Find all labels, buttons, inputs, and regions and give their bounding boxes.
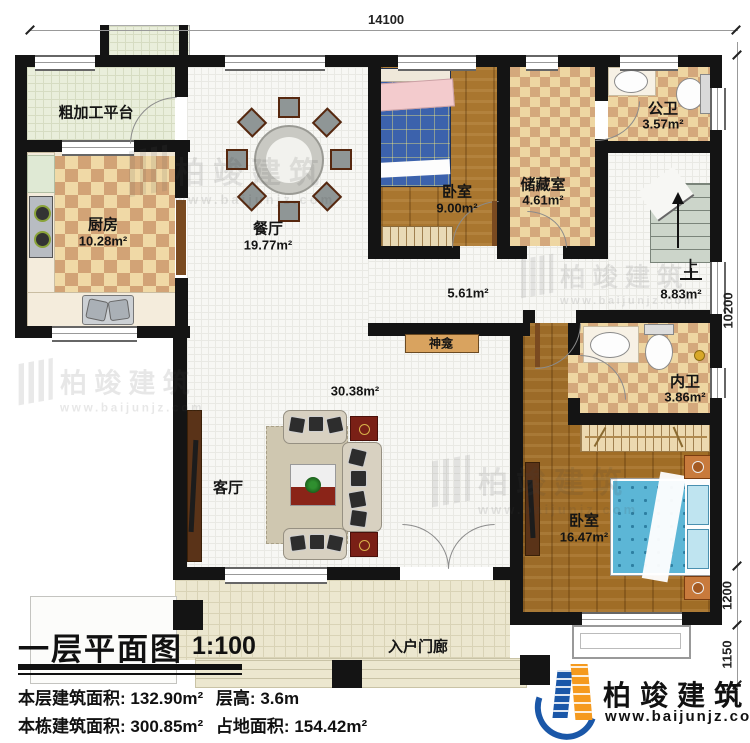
wall-privatebath-bottom <box>568 413 710 425</box>
dining-chair <box>226 149 248 170</box>
room-area-living: 30.38m² <box>331 384 379 399</box>
wall-living-left <box>173 338 187 580</box>
sofa-cushion <box>347 447 368 468</box>
sofa-cushion <box>288 416 307 435</box>
kitchen-sliding-door <box>176 200 186 275</box>
stats-footprint-label: 占地面积: <box>216 717 290 736</box>
room-label-platform: 粗加工平台 <box>58 102 133 123</box>
room-label-private-bath: 内卫 <box>670 371 700 392</box>
stairs-up-arrow <box>672 192 684 204</box>
fridge <box>27 155 55 193</box>
sofa-cushion <box>326 416 345 435</box>
stats-height-label: 层高: <box>216 689 256 708</box>
stove-burner <box>34 205 51 222</box>
wall-kitchen-dining <box>175 278 188 338</box>
wall-top <box>15 55 722 67</box>
area-stair-hall: 8.83m² <box>660 287 701 302</box>
dim-line-right <box>737 42 738 690</box>
stove-burner <box>34 231 51 248</box>
wall-storage-bottom <box>497 246 527 259</box>
sofa-cushion <box>349 509 368 528</box>
wall-privatebath-left <box>568 398 580 413</box>
window <box>225 55 325 71</box>
room-label-public-bath: 公卫 <box>648 98 678 119</box>
wall-left <box>15 55 27 338</box>
logo-building-orange-icon <box>571 664 593 720</box>
private-bath-sink <box>590 332 630 358</box>
bedroom2-door-leaf <box>535 323 540 367</box>
side-table <box>350 416 378 441</box>
room-area-dining: 19.77m² <box>244 238 292 253</box>
window <box>52 326 137 342</box>
sofa-top <box>283 410 347 444</box>
public-bath-sink <box>614 70 648 93</box>
stats-floor-area-label: 本层建筑面积: <box>18 689 126 708</box>
room-area-private-bath: 3.86m² <box>664 390 705 405</box>
wall-publicbath-left <box>595 67 608 101</box>
wall-right <box>710 55 722 625</box>
stats-footprint-value: 154.42m² <box>294 717 367 736</box>
area-hallway: 5.61m² <box>447 286 488 301</box>
wall-bedroom2-top <box>523 310 535 323</box>
bed-pillow <box>687 485 709 525</box>
side-table-knob <box>359 540 370 551</box>
room-label-kitchen: 厨房 <box>88 214 118 235</box>
watermark-glyph-icon <box>19 358 53 405</box>
stats-total-area-label: 本栋建筑面积: <box>18 717 126 736</box>
sofa-cushion <box>289 534 307 552</box>
plant <box>305 477 321 493</box>
bed-blanket <box>375 78 455 111</box>
window <box>62 140 134 156</box>
dining-chair <box>330 149 352 170</box>
room-area-bedroom1: 9.00m² <box>436 201 477 216</box>
room-label-living: 客厅 <box>213 477 243 498</box>
wall-kitchen-dining <box>175 143 188 198</box>
dining-table-top <box>266 137 312 183</box>
window <box>710 368 726 398</box>
window <box>398 55 476 71</box>
wall-bedroom2-left <box>510 336 523 612</box>
logo-url: www.baijunjz.com <box>605 708 750 725</box>
room-label-porch: 入户门廊 <box>388 636 448 657</box>
stats-height-value: 3.6m <box>260 689 299 708</box>
nightstand <box>684 455 712 479</box>
wardrobe-rod <box>585 436 707 438</box>
sink-basin <box>85 298 109 322</box>
drawing-title: 一层平面图 <box>18 624 183 669</box>
coffee-table <box>290 464 336 506</box>
bedroom1-door-leaf <box>492 201 497 246</box>
sofa-bottom <box>283 528 347 560</box>
bedroom2-wardrobe <box>580 422 712 452</box>
wall-bedroom1-left <box>368 67 381 246</box>
private-bath-toilet <box>645 334 673 370</box>
bay-window-inner <box>580 633 681 649</box>
window <box>225 567 327 584</box>
floor-drain <box>694 350 705 361</box>
bedroom1-wardrobe <box>381 226 453 248</box>
stats-line1: 本层建筑面积: 132.90m² 层高: 3.6m <box>18 684 299 709</box>
floor-plan-canvas: 粗加工平台 厨房 10.28m² 餐厅 19.77m² 卧室 9.00m² 储藏… <box>0 0 750 743</box>
room-area-storage: 4.61m² <box>522 193 563 208</box>
window <box>710 88 726 130</box>
sofa-cushion <box>308 416 324 432</box>
nightstand <box>684 576 712 600</box>
stats-line2: 本栋建筑面积: 300.85m² 占地面积: 154.42m² <box>18 712 367 737</box>
dim-right-10200: 10200 <box>721 287 736 335</box>
drawing-scale: 1:100 <box>192 632 256 661</box>
sofa-main <box>342 442 382 532</box>
window <box>35 55 95 71</box>
dim-top-value: 14100 <box>368 12 404 27</box>
wall-publicbath-bottom <box>608 141 710 153</box>
kitchen-sink <box>82 295 134 325</box>
logo: 柏竣建筑 www.baijunjz.com <box>533 662 748 742</box>
bay-window <box>572 625 691 659</box>
bed-single <box>377 68 451 187</box>
bed-pillow <box>687 529 709 569</box>
window <box>620 55 678 71</box>
room-label-bedroom2: 卧室 <box>569 510 599 531</box>
dim-right-1200: 1200 <box>720 576 735 616</box>
title-underline-thin <box>18 673 242 675</box>
room-label-storage: 储藏室 <box>520 174 565 195</box>
stats-floor-area-value: 132.90m² <box>130 689 203 708</box>
sofa-cushion <box>348 490 368 510</box>
dim-line-top <box>30 30 738 31</box>
stove <box>29 196 53 258</box>
stats-total-area-value: 300.85m² <box>130 717 203 736</box>
bed-sheet <box>378 159 451 178</box>
room-label-dining: 餐厅 <box>253 218 283 239</box>
room-area-kitchen: 10.28m² <box>79 234 127 249</box>
window <box>526 55 558 71</box>
bed-double <box>610 478 712 576</box>
wall-kitchen-dining <box>175 55 188 97</box>
side-table-knob <box>359 424 370 435</box>
dining-table <box>254 125 324 195</box>
sink-basin <box>108 299 131 322</box>
shrine-label: 神龛 <box>429 335 453 352</box>
room-area-public-bath: 3.57m² <box>642 117 683 132</box>
side-table <box>350 532 378 557</box>
stairs-direction-line <box>677 198 679 248</box>
room-label-bedroom1: 卧室 <box>442 181 472 202</box>
wall-storage-right <box>595 139 608 259</box>
dining-chair <box>278 97 300 118</box>
wall-bedroom2-top <box>576 310 710 323</box>
stairs-up-label: 上 <box>683 256 698 277</box>
room-area-bedroom2: 16.47m² <box>560 530 608 545</box>
porch-pillar <box>332 660 362 688</box>
sofa-cushion <box>309 534 325 550</box>
wall-bedroom1-bottom <box>368 246 460 259</box>
sofa-cushion <box>326 534 345 553</box>
sofa-cushion <box>350 470 367 487</box>
